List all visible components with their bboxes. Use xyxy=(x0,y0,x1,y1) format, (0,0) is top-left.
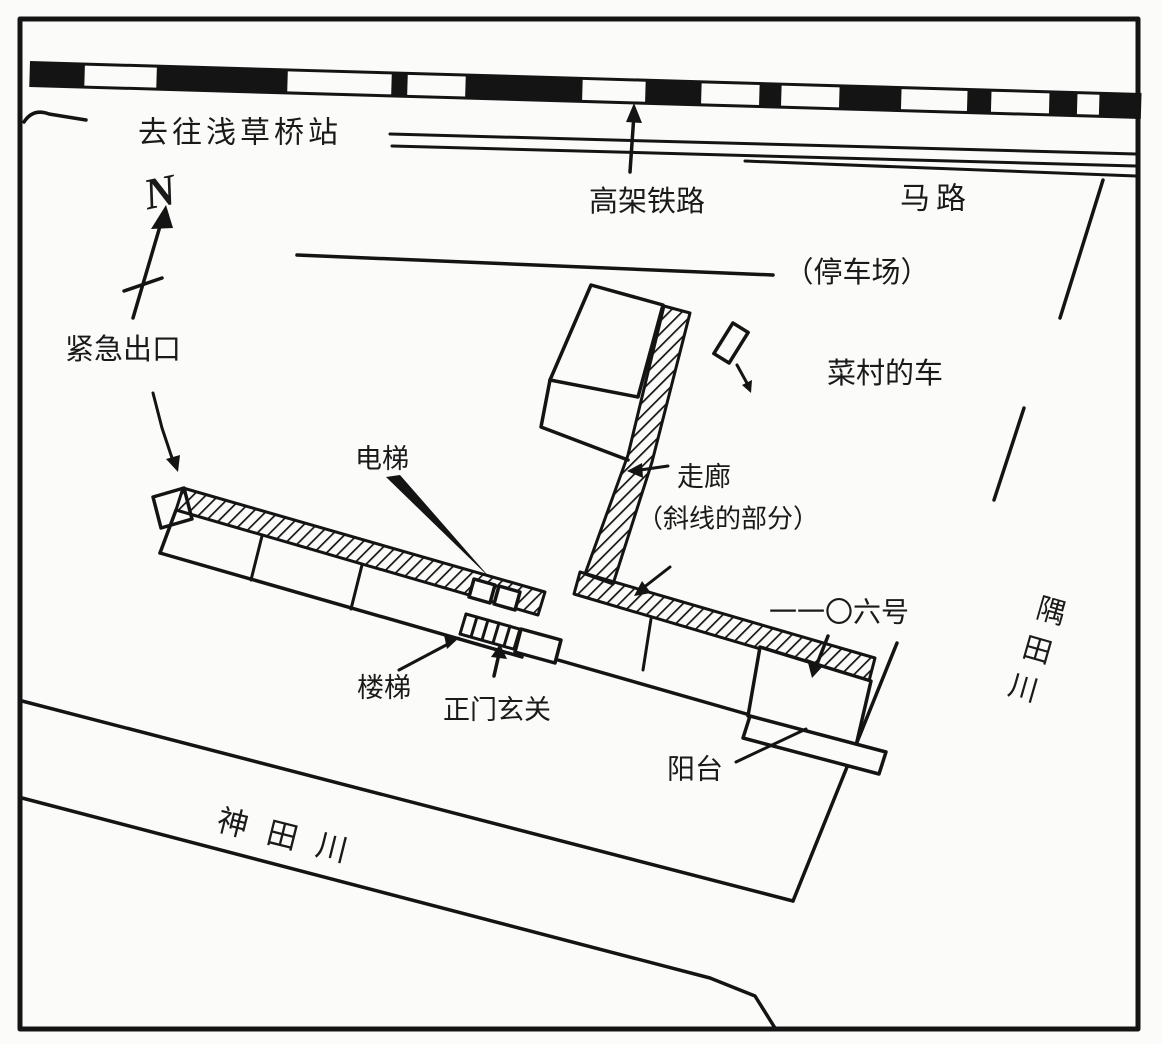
label-main-entrance: 正门玄关 xyxy=(443,695,551,725)
compass-n-letter: N xyxy=(138,164,182,219)
compass-needle xyxy=(133,216,163,318)
label-namura-car: 菜村的车 xyxy=(827,357,943,390)
scanned-map-page: N xyxy=(0,0,1162,1044)
label-corridor: 走廊 xyxy=(677,462,731,492)
svg-text:川: 川 xyxy=(1005,670,1042,709)
elevated-rail-arrow xyxy=(626,103,642,172)
track-end-mark xyxy=(24,112,86,122)
label-balcony: 阳台 xyxy=(667,754,723,786)
label-road: 马路 xyxy=(900,183,972,216)
label-corridor-note: （斜线的部分） xyxy=(637,505,819,534)
emergency-exit-leader xyxy=(153,393,180,472)
parking-lot-line xyxy=(297,255,773,275)
west-room-partition-2 xyxy=(351,565,362,609)
label-elevated-railway: 高架铁路 xyxy=(589,185,705,218)
elevated-rail-line-upper xyxy=(390,134,1136,154)
label-stairs: 楼梯 xyxy=(357,673,411,703)
east-room-partition xyxy=(643,619,651,670)
label-elevator: 电梯 xyxy=(355,444,409,474)
west-room-partition-1 xyxy=(251,536,262,580)
label-room-number: 一一〇六号 xyxy=(769,597,909,629)
stairs-leader xyxy=(399,635,460,670)
compass-north: N xyxy=(124,164,183,318)
site-plan-svg: N xyxy=(0,0,1162,1044)
label-to-station: 去往浅草桥站 xyxy=(138,117,342,150)
east-south-wall xyxy=(558,660,750,715)
label-emergency-exit: 紧急出口 xyxy=(65,333,181,366)
svg-text:隅: 隅 xyxy=(1033,593,1070,632)
label-sumida-river: 隅 田 川 xyxy=(1005,593,1070,709)
railway-track-band xyxy=(29,61,1141,119)
svg-text:田: 田 xyxy=(1019,632,1056,671)
label-parking-lot: （停车场） xyxy=(784,256,929,289)
kanda-river-bank-south xyxy=(22,798,775,1028)
label-kanda-river: 神田川 xyxy=(214,803,371,874)
car-shape xyxy=(714,323,752,393)
kanda-river-bank-north xyxy=(22,701,793,901)
